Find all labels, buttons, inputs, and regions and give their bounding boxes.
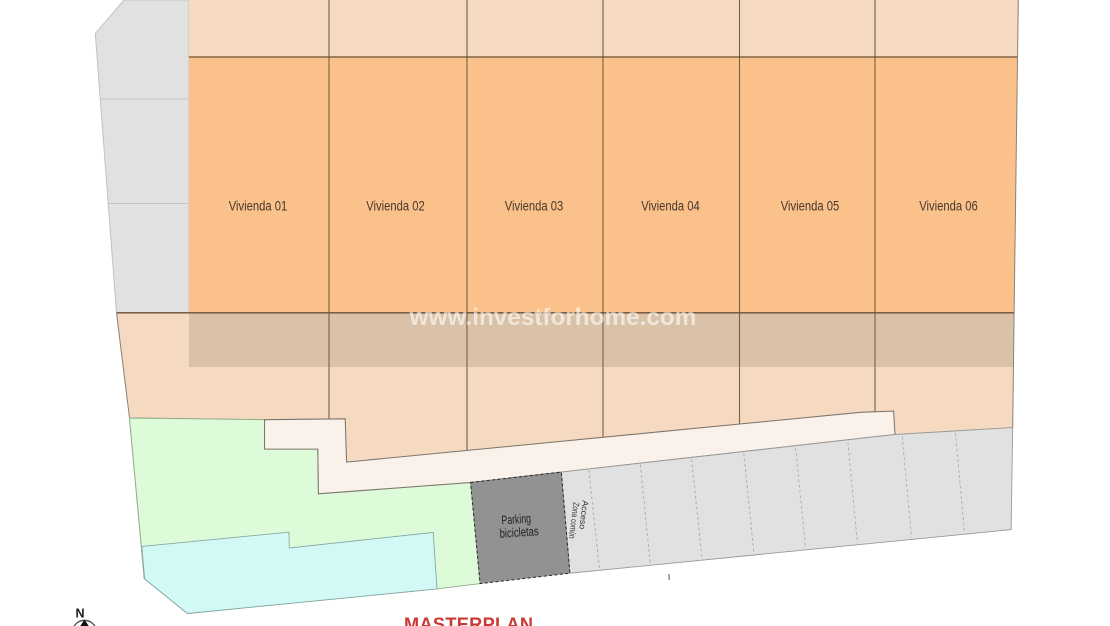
svg-text:Vivienda 01: Vivienda 01 [229, 198, 288, 213]
svg-text:www.investforhome.com: www.investforhome.com [409, 304, 697, 331]
svg-text:Vivienda 06: Vivienda 06 [919, 198, 978, 213]
svg-text:MASTERPLAN: MASTERPLAN [404, 615, 533, 626]
svg-text:Vivienda 04: Vivienda 04 [641, 198, 700, 213]
svg-text:Vivienda 02: Vivienda 02 [366, 198, 425, 213]
svg-text:bicicletas: bicicletas [499, 524, 539, 541]
svg-text:Vivienda 03: Vivienda 03 [505, 198, 564, 213]
svg-text:Vivienda 05: Vivienda 05 [781, 198, 840, 213]
svg-text:N: N [76, 606, 85, 620]
